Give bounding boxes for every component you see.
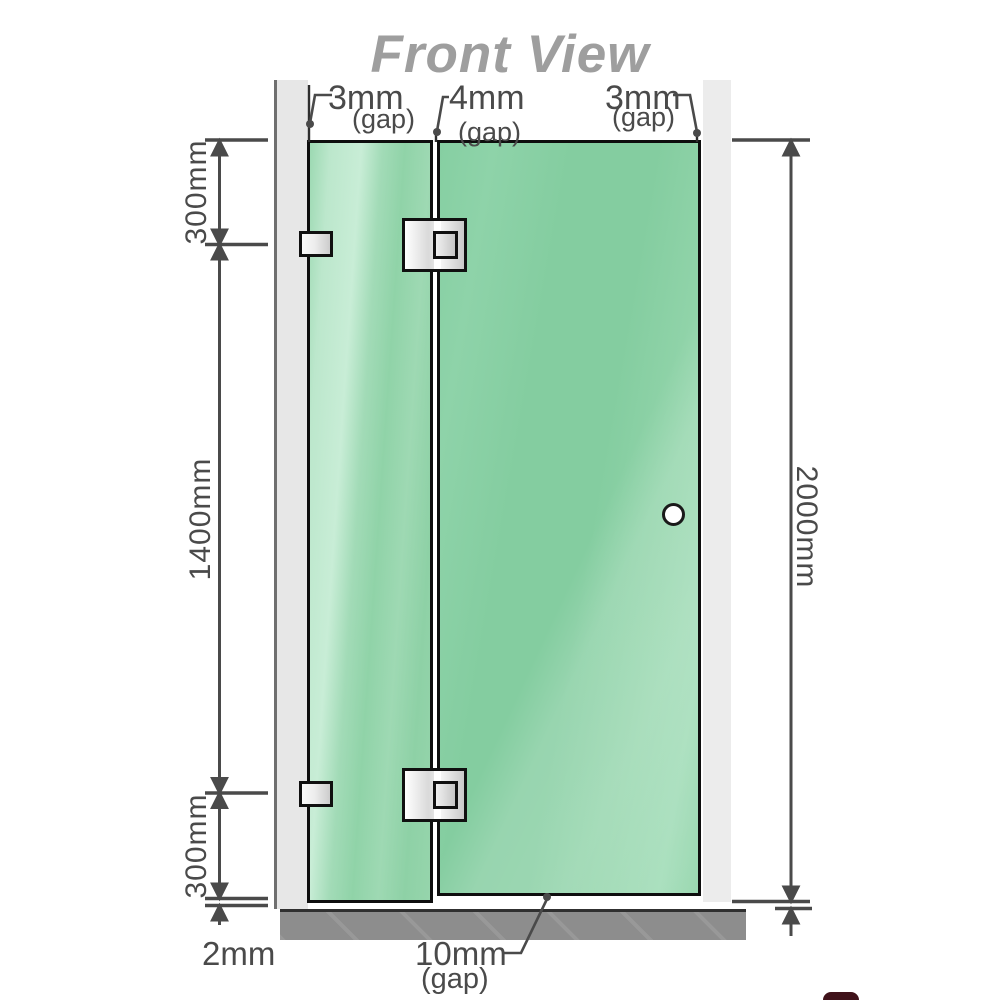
diagram-title: Front View bbox=[340, 24, 680, 80]
gap-label-top-middle-qualifier: (gap) bbox=[458, 117, 521, 148]
door-knob bbox=[662, 503, 685, 526]
dimension-label-left-middle: 1400mm bbox=[184, 429, 216, 609]
dimension-label-left-bottom: 300mm bbox=[180, 756, 212, 936]
gap-label-top-right-qualifier: (gap) bbox=[612, 102, 675, 133]
dimension-label-right-height: 2000mm bbox=[791, 437, 823, 617]
door-glass-panel bbox=[437, 140, 701, 896]
watermark-fragment bbox=[823, 992, 859, 1000]
dimension-label-floor-gap: 2mm bbox=[202, 935, 275, 973]
hinge-tab bbox=[433, 231, 458, 259]
glass-hinge-top bbox=[402, 218, 467, 272]
gap-label-bottom-door-qualifier: (gap) bbox=[421, 963, 489, 996]
hinge-tab bbox=[433, 781, 458, 809]
wall-bracket-bottom bbox=[299, 781, 333, 807]
front-view-diagram: Front View bbox=[0, 0, 1000, 1000]
dimension-label-left-top: 300mm bbox=[180, 102, 212, 282]
glass-hinge-bottom bbox=[402, 768, 467, 822]
gap-label-top-left-qualifier: (gap) bbox=[352, 104, 415, 135]
floor-base bbox=[280, 909, 746, 940]
right-wall bbox=[703, 80, 731, 902]
wall-bracket-top bbox=[299, 231, 333, 257]
gap-label-top-middle: 4mm bbox=[449, 79, 525, 118]
